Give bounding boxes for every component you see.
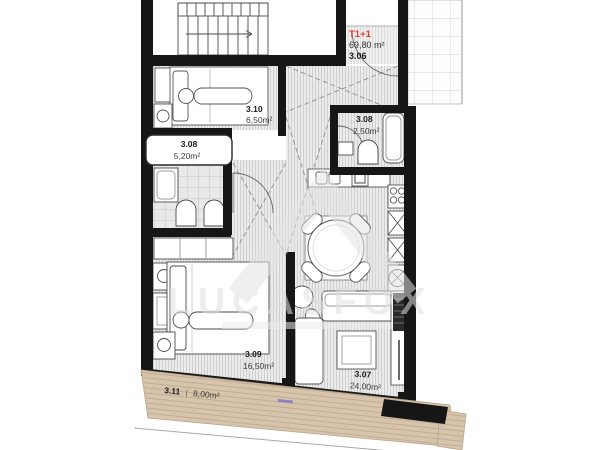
unit-type: T1+1 (349, 29, 372, 40)
staircase (178, 3, 268, 55)
wardrobe-icon (154, 238, 233, 259)
terrace-number: 3.11 (164, 385, 181, 397)
person-figure-body (194, 88, 252, 104)
toilet-icon (176, 200, 196, 226)
svg-text:3.08: 3.08 (181, 139, 198, 149)
svg-text:16,50m²: 16,50m² (243, 361, 274, 371)
svg-text:5,20m²: 5,20m² (174, 151, 201, 161)
svg-text:2,50m²: 2,50m² (353, 126, 380, 136)
bidet-icon (204, 200, 224, 226)
toilet-icon (358, 140, 378, 164)
svg-text:3.10: 3.10 (246, 104, 263, 114)
person-figure-head (179, 89, 194, 104)
svg-text:3.08: 3.08 (356, 114, 373, 124)
lamp-icon (157, 110, 169, 122)
svg-text:3.07: 3.07 (354, 369, 371, 380)
unit-area: 69,80 m² (349, 40, 385, 50)
exterior-grid-terrace (408, 0, 462, 104)
watermark-text: LUCASFOX (168, 281, 433, 323)
label-room-308-left: 3.08 5,20m² (146, 135, 232, 165)
svg-text:6,50m²: 6,50m² (246, 115, 273, 125)
lamp-icon (158, 339, 171, 352)
watermark-tagline-bar (222, 322, 392, 329)
floor-plan-drawing: T1+1 69,80 m² 3.06 3.10 6,50m² 3.08 5,20… (0, 0, 600, 450)
coffee-table-icon (337, 331, 376, 369)
svg-text:3.09: 3.09 (245, 349, 262, 359)
floor-plan: T1+1 69,80 m² 3.06 3.10 6,50m² 3.08 5,20… (0, 0, 600, 450)
unit-number: 3.06 (349, 51, 367, 61)
nightstand-icon (155, 68, 171, 102)
sink-icon (338, 142, 353, 155)
